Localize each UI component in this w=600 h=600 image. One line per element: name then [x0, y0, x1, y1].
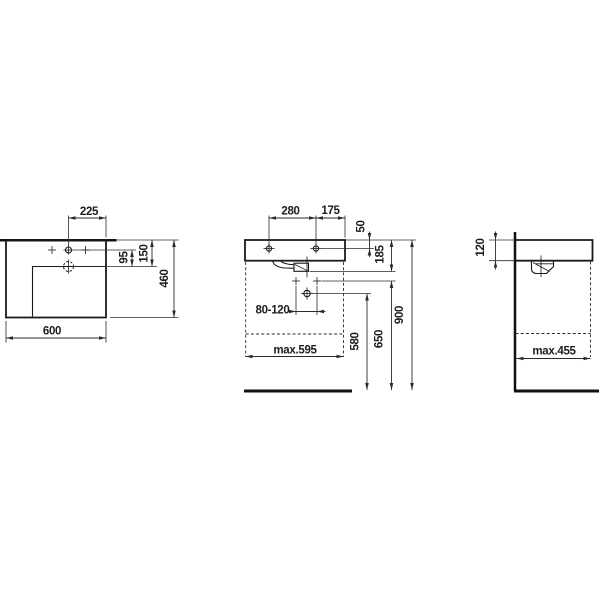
- supply-connection-right: [313, 277, 321, 285]
- basin-outline-front: [245, 240, 345, 261]
- dim-rim-to-outlet: 185: [310, 240, 417, 272]
- cabinet-outline-side: [516, 262, 591, 358]
- dim-label-185: 185: [375, 244, 387, 263]
- tap-hole-symbol: [64, 246, 74, 255]
- dim-label-225: 225: [80, 206, 99, 218]
- dim-label-95: 95: [119, 251, 131, 264]
- top-view: 225 95 150 460 600: [0, 206, 179, 343]
- dim-label-280: 280: [281, 206, 299, 218]
- waste-trap-front: [273, 257, 309, 278]
- dim-rim-height: 900: [394, 240, 412, 390]
- dim-label-80-120: 80-120: [255, 305, 289, 317]
- supply-connection-left: [292, 277, 300, 285]
- drain-symbol-plan: [62, 260, 76, 274]
- washbasin-dimension-drawing: 225 95 150 460 600: [0, 0, 600, 600]
- dim-max-cabinet-depth: max.455: [517, 346, 591, 359]
- tap-hole-alt-marker-left: [48, 246, 56, 254]
- basin-outline-plan: [6, 240, 106, 318]
- waste-outlet-symbol: [301, 288, 313, 300]
- basin-outline-side: [515, 240, 593, 261]
- dim-label-580: 580: [350, 332, 362, 350]
- dim-max-cabinet-width: max.595: [246, 345, 344, 357]
- dim-apron-height: 120: [475, 232, 515, 270]
- dim-hole-spacing: 280 175: [269, 205, 345, 245]
- dim-label-600: 600: [43, 326, 61, 338]
- dim-label-650: 650: [374, 330, 386, 348]
- dim-label-max-595: max.595: [273, 345, 317, 357]
- dim-trap-outlet-height: 580: [313, 294, 372, 391]
- dim-label-50: 50: [356, 220, 368, 232]
- side-view: 120 max.455: [475, 232, 599, 392]
- dim-rim-to-holes: 50: [322, 220, 375, 257]
- dim-label-150: 150: [139, 244, 151, 262]
- bowl-edge-plan: [33, 267, 107, 317]
- dim-label-175: 175: [321, 205, 340, 217]
- dim-label-460: 460: [159, 269, 171, 287]
- dim-label-max-455: max.455: [532, 346, 576, 358]
- dim-label-900: 900: [394, 306, 406, 324]
- front-view: 280 175 50 185 80-120: [244, 205, 416, 391]
- dim-waste-range: 80-120: [255, 286, 325, 317]
- technical-drawing-canvas: 225 95 150 460 600: [0, 0, 600, 600]
- dim-width: 600: [6, 321, 106, 343]
- waste-trap-side: [532, 256, 554, 278]
- dim-label-120: 120: [475, 238, 487, 256]
